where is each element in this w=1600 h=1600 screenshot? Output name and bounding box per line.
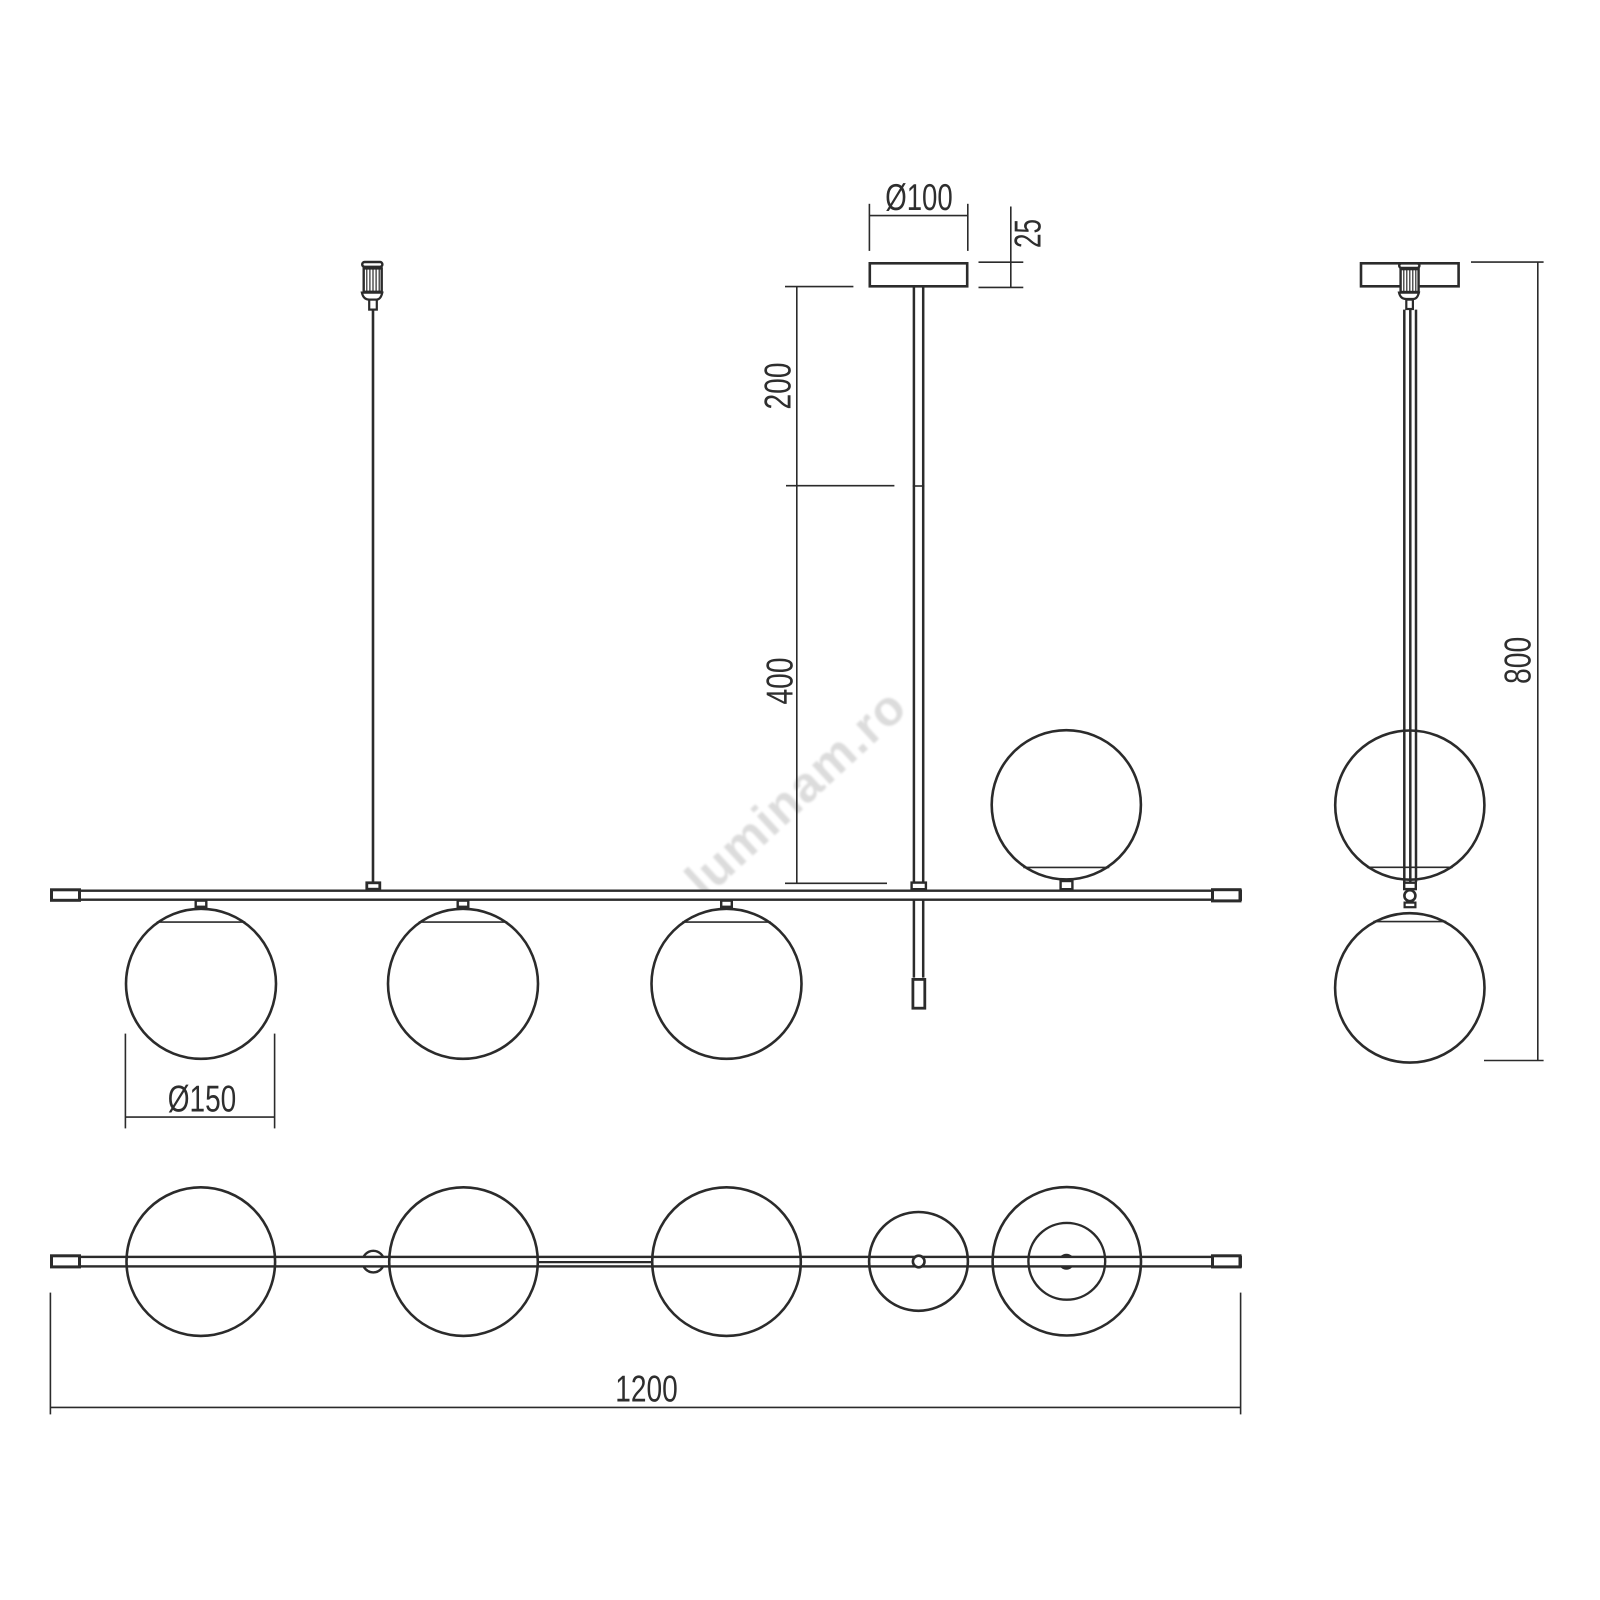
svg-text:1200: 1200 [615,1368,678,1410]
svg-text:800: 800 [1497,637,1539,684]
svg-text:200: 200 [757,363,799,410]
svg-text:Ø100: Ø100 [885,176,953,218]
svg-text:25: 25 [1007,219,1049,248]
svg-text:400: 400 [759,658,801,705]
svg-text:Ø150: Ø150 [168,1078,237,1120]
